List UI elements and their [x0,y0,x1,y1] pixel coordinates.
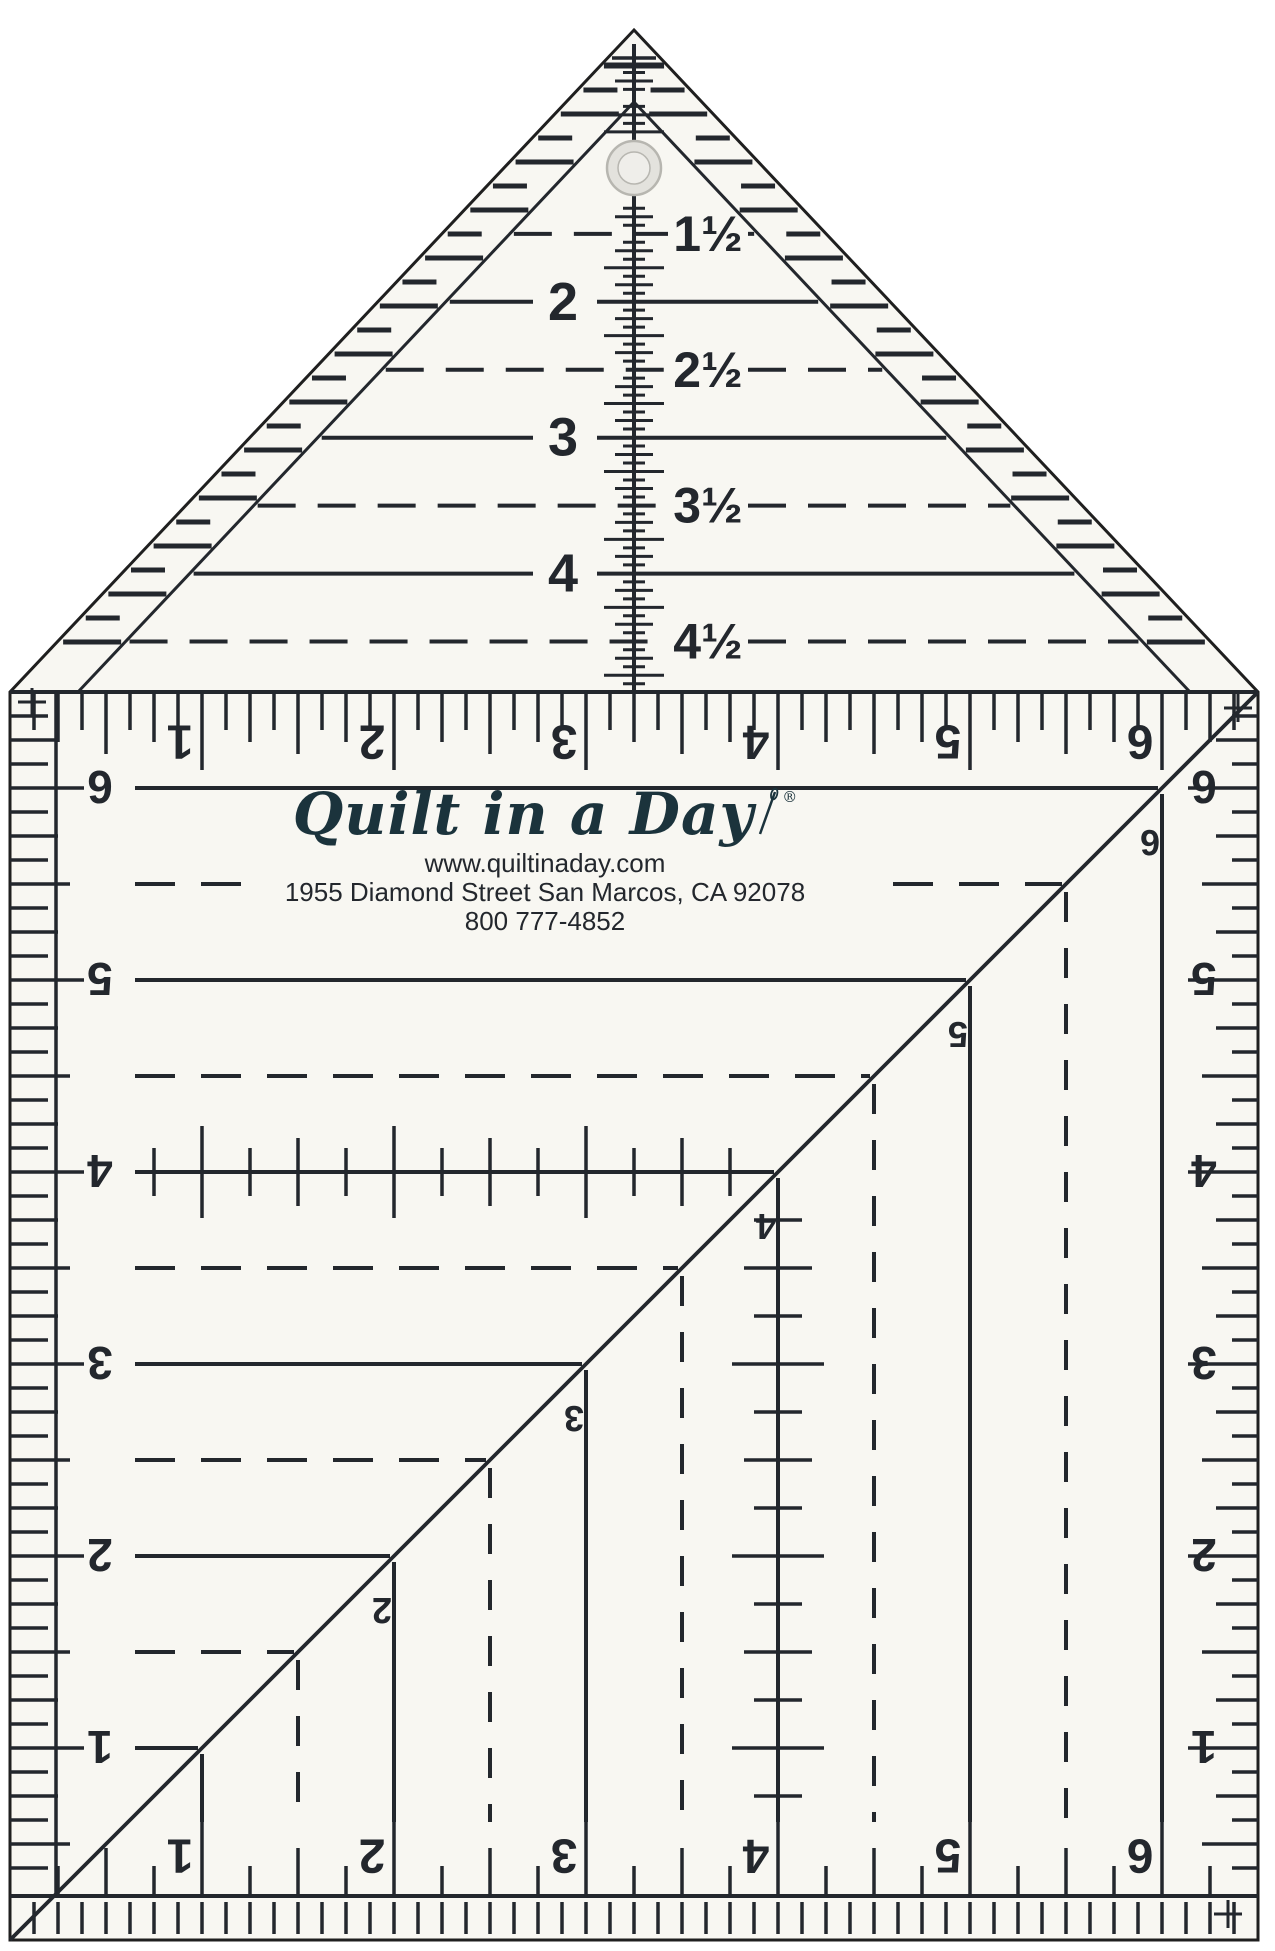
left-scale-number: 2 [87,1529,113,1581]
diagonal-column-number: 6 [1140,822,1160,863]
left-scale-number: 1 [87,1721,113,1773]
triangle-size-label: 2½ [673,342,743,398]
left-scale-number: 3 [87,1337,113,1389]
triangle-size-label: 2 [548,272,578,332]
diagonal-column-number: 2 [372,1590,392,1631]
bottom-scale-number: 5 [935,1828,962,1881]
bottom-scale-number: 6 [1127,1828,1154,1881]
left-scale-number: 6 [87,761,113,813]
top-scale-number: 6 [1127,714,1154,767]
logo-row: Quilt in a Day ® [255,784,835,845]
bottom-scale-number: 2 [359,1828,386,1881]
logo-text: Quilt in a Day [293,784,755,845]
left-scale-number: 4 [87,1145,113,1197]
triangle-size-label: 4½ [673,614,743,670]
triangle-size-label: 4 [548,544,578,604]
top-scale-number: 3 [551,714,578,767]
bottom-scale-number: 4 [742,1828,769,1881]
website-text: www.quiltinaday.com [255,849,835,878]
brand-block: Quilt in a Day ® www.quiltinaday.com 195… [255,784,835,936]
address-text: 1955 Diamond Street San Marcos, CA 92078 [255,878,835,907]
right-scale-number: 2 [1191,1529,1217,1581]
triangle-size-label: 3½ [673,478,743,534]
right-scale-number: 3 [1191,1337,1217,1389]
bottom-scale-number: 1 [167,1828,194,1881]
top-scale-number: 2 [359,714,386,767]
ruler-graphic: 1½22½33½44½12345665432165432123456123456 [0,0,1275,1951]
top-scale-number: 1 [167,714,194,767]
right-scale-number: 4 [1191,1145,1217,1197]
diagonal-column-number: 3 [564,1398,584,1439]
diagonal-column-number: 4 [756,1206,776,1247]
triangle-size-label: 3 [548,408,578,468]
hanging-hole-center [618,152,650,184]
screenshot: 1½22½33½44½12345665432165432123456123456… [0,0,1275,1951]
phone-text: 800 777-4852 [255,907,835,936]
diagonal-column-number: 5 [948,1014,968,1055]
right-scale-number: 1 [1191,1721,1217,1773]
registered-mark: ® [782,788,797,806]
bottom-scale-number: 3 [551,1828,578,1881]
left-scale-number: 5 [87,953,113,1005]
top-scale-number: 5 [935,714,962,767]
right-scale-number: 6 [1191,761,1217,813]
right-scale-number: 5 [1191,953,1217,1005]
sewing-needle-icon [756,784,780,836]
top-scale-number: 4 [742,714,769,767]
triangle-size-label: 1½ [673,206,743,262]
